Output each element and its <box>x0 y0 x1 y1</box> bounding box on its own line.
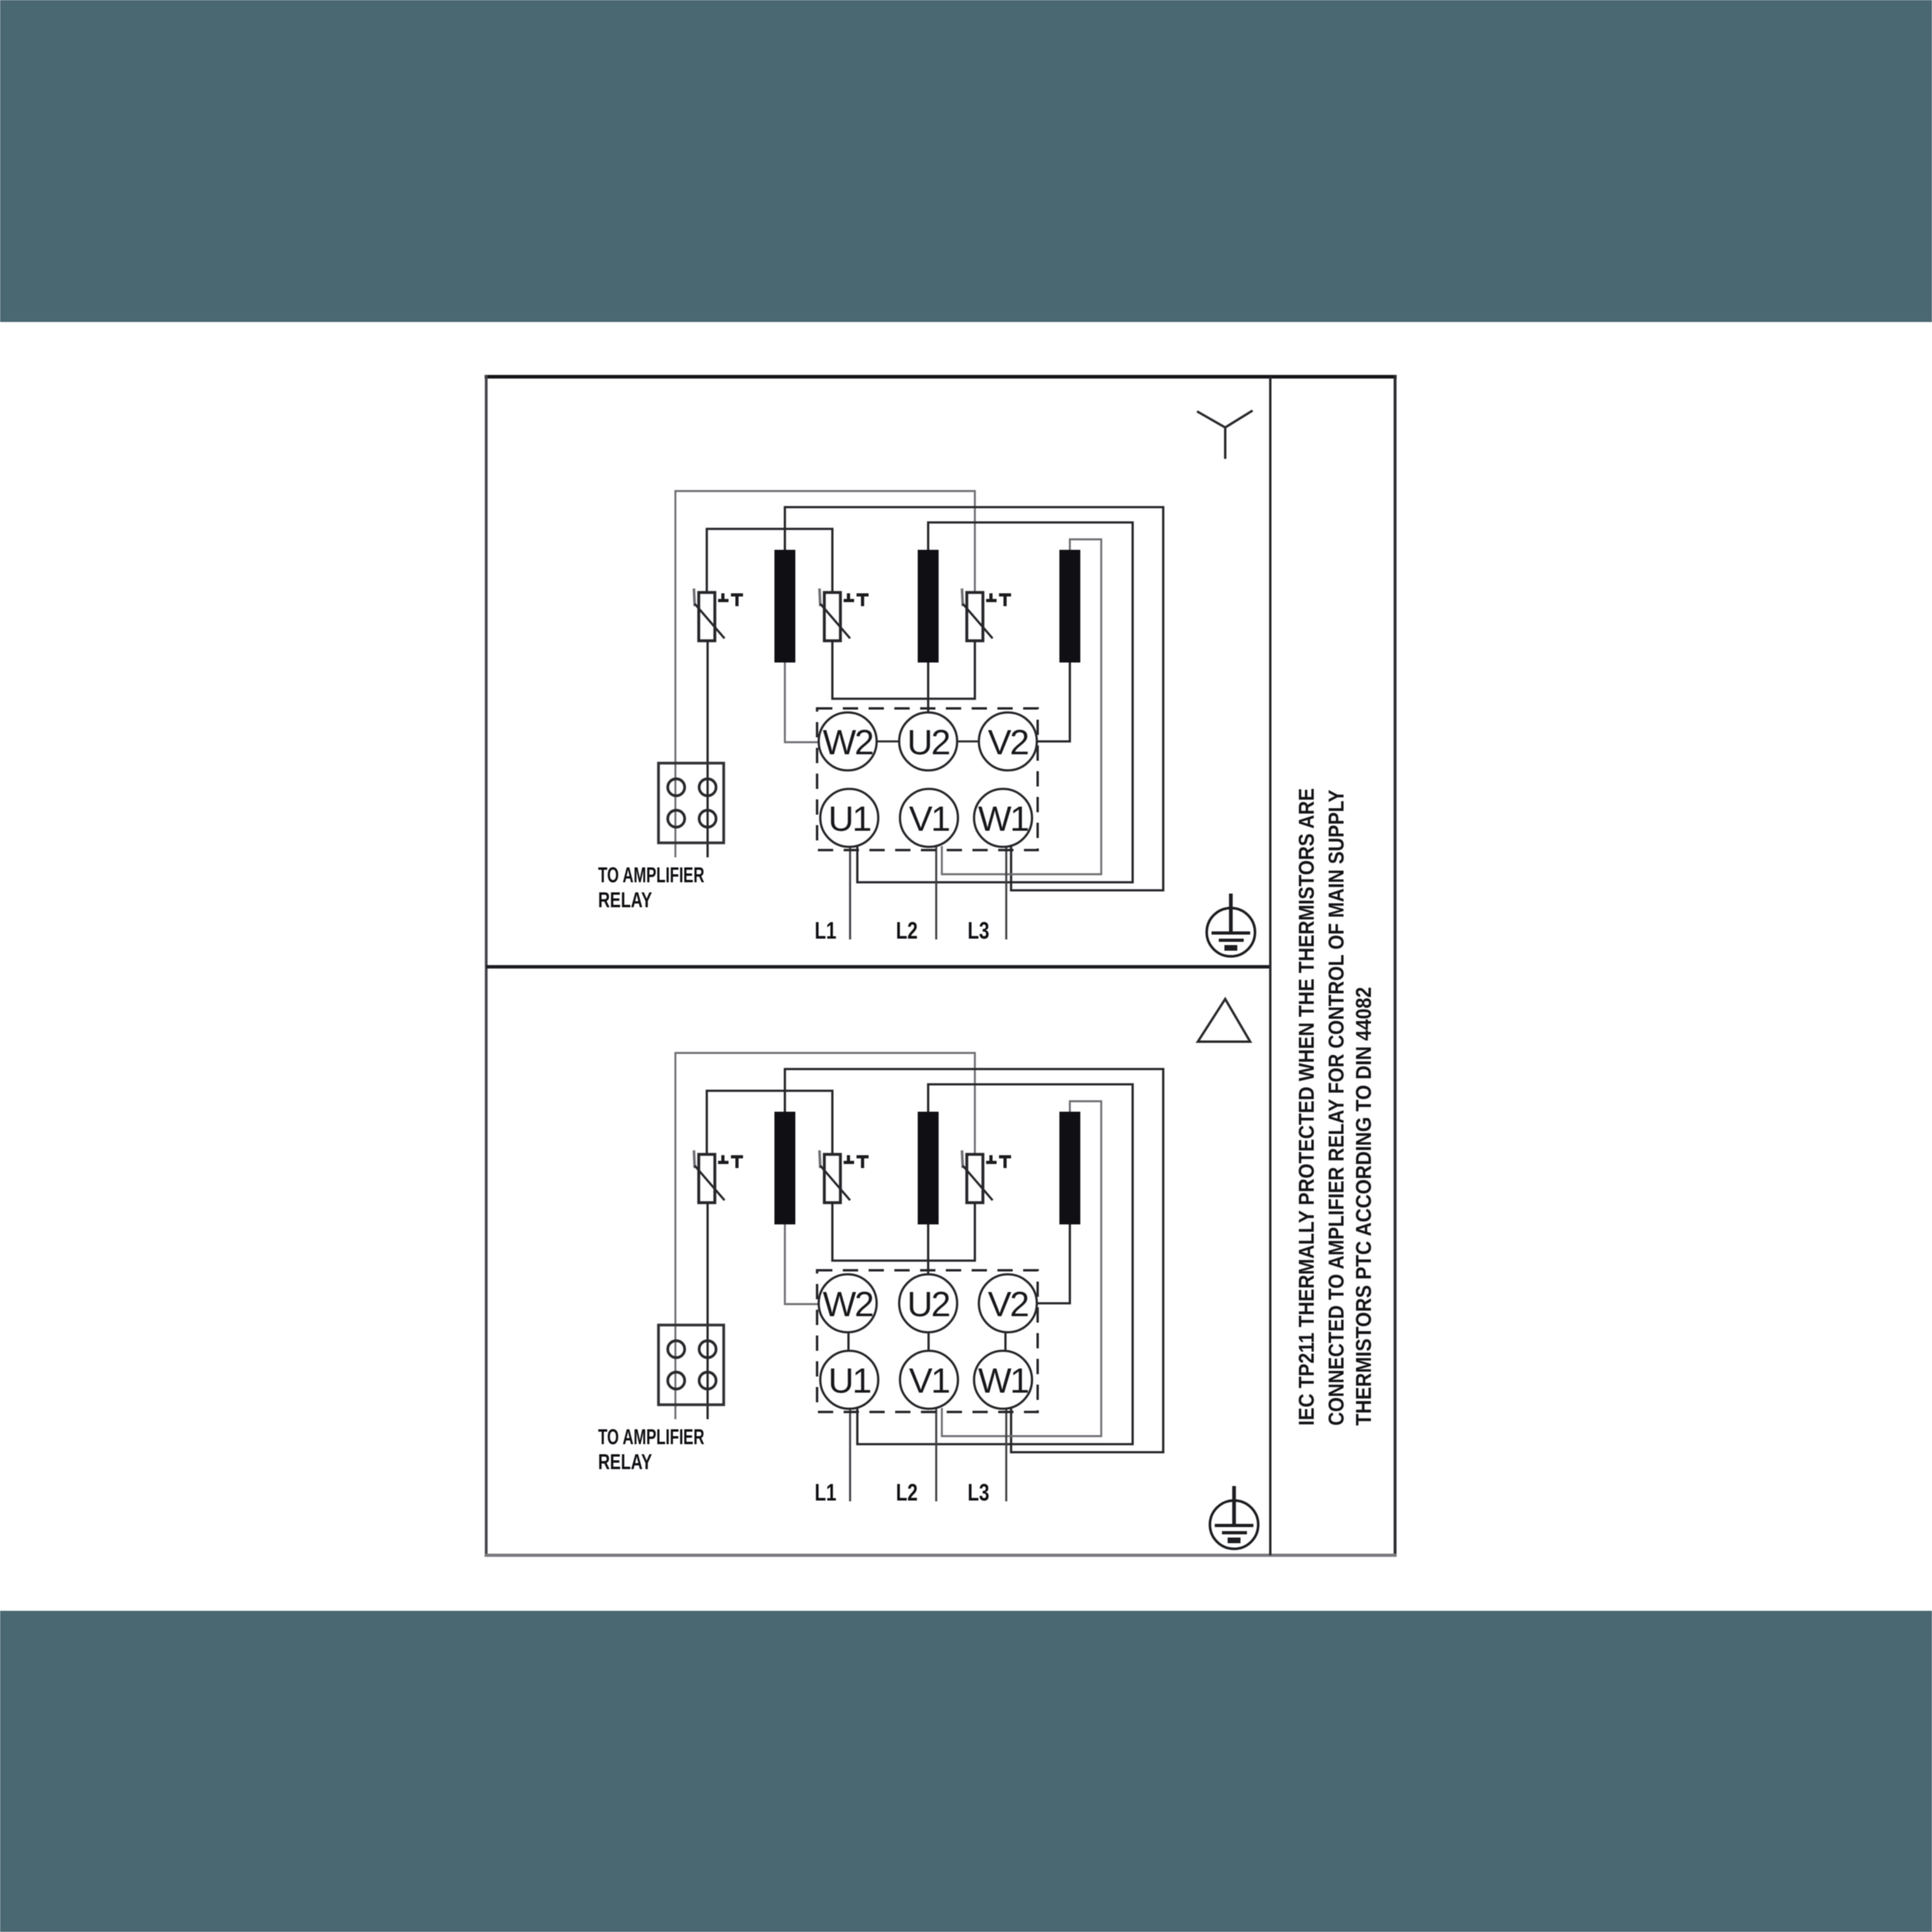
svg-text:CONNECTED TO AMPLIFIER RELAY F: CONNECTED TO AMPLIFIER RELAY FOR CONTROL… <box>1324 790 1348 1426</box>
svg-text:IEC TP211 THERMALLY PROTECTED: IEC TP211 THERMALLY PROTECTED WHEN THE T… <box>1294 788 1319 1426</box>
svg-text:THERMISTORS PTC ACCORDING TO D: THERMISTORS PTC ACCORDING TO DIN 44082 <box>1352 987 1376 1426</box>
